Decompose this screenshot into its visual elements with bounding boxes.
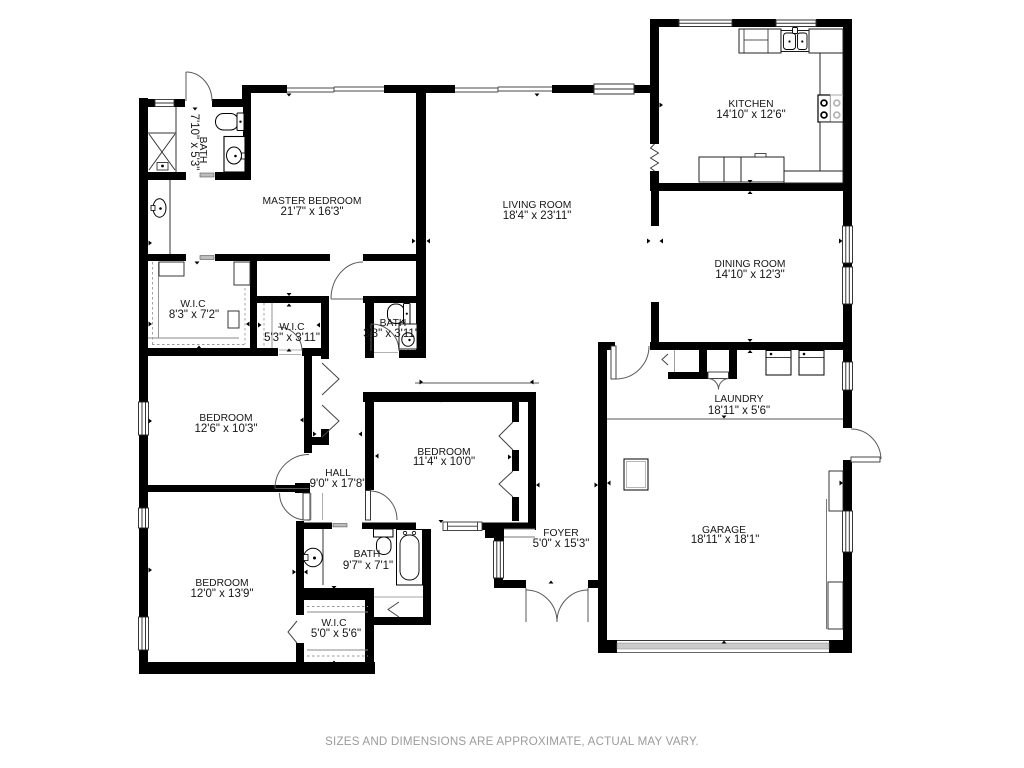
svg-text:18'11" x 18'1": 18'11" x 18'1" [691, 534, 760, 546]
svg-text:21'7" x 16'3": 21'7" x 16'3" [280, 206, 343, 218]
svg-text:BATH: BATH [354, 549, 381, 560]
svg-text:5'0" x 5'6": 5'0" x 5'6" [311, 628, 361, 640]
svg-text:5'0" x 15'3": 5'0" x 15'3" [533, 538, 590, 550]
svg-text:18'11" x 5'6": 18'11" x 5'6" [708, 405, 770, 417]
svg-text:18'4" x 23'11": 18'4" x 23'11" [503, 210, 572, 222]
svg-text:11'4" x 10'0": 11'4" x 10'0" [413, 456, 475, 468]
svg-text:9'0" x 17'8": 9'0" x 17'8" [310, 478, 367, 490]
svg-text:8'3" x 7'2": 8'3" x 7'2" [169, 309, 219, 321]
svg-text:14'10" x 12'6": 14'10" x 12'6" [716, 109, 785, 121]
svg-text:LAUNDRY: LAUNDRY [714, 394, 763, 405]
svg-text:12'6" x 10'3": 12'6" x 10'3" [194, 423, 257, 435]
svg-text:7'10" x 5'3": 7'10" x 5'3" [188, 114, 200, 171]
svg-text:3'8" x 3'11": 3'8" x 3'11" [363, 328, 419, 340]
svg-text:14'10" x 12'3": 14'10" x 12'3" [715, 269, 784, 281]
svg-text:5'3" x 3'11": 5'3" x 3'11" [264, 332, 320, 344]
svg-text:9'7" x 7'1": 9'7" x 7'1" [343, 560, 393, 572]
svg-text:12'0" x 13'9": 12'0" x 13'9" [190, 588, 253, 600]
svg-text:SIZES AND DIMENSIONS ARE APPRO: SIZES AND DIMENSIONS ARE APPROXIMATE, AC… [325, 735, 699, 748]
